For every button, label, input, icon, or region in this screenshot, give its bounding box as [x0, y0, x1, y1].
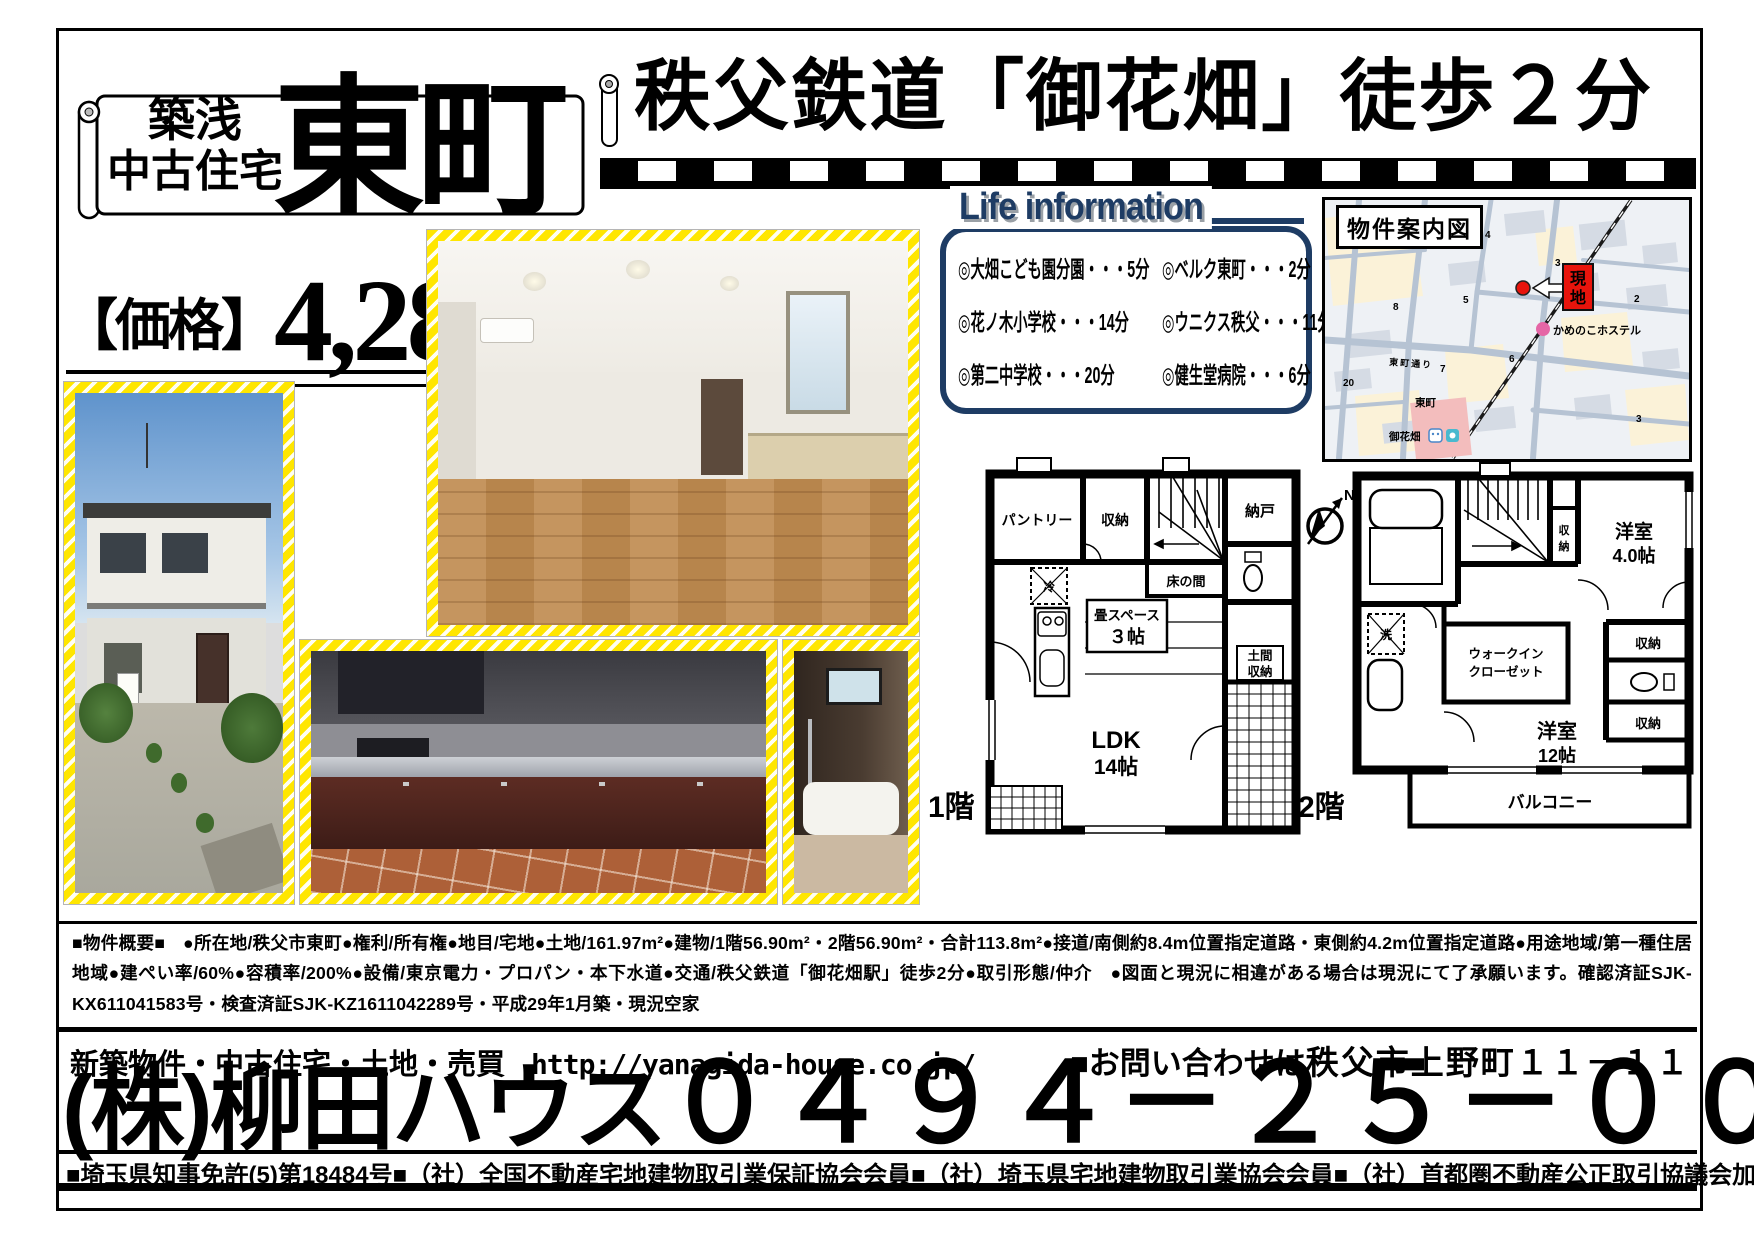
- flyer-page: 築浅 中古住宅 東町 秩父鉄道「御花畑」徒歩２分 【価格】4,280万円: [0, 0, 1754, 1240]
- footer-company-row: (株)柳田ハウス ０４９４－２５－００３８: [62, 1056, 1694, 1153]
- closet-a-label: 収納: [1635, 636, 1661, 651]
- floorplan-1f: 冷 畳スペース ３帖 パントリー 収納 床の間 納戸 土間 収納: [985, 450, 1301, 838]
- photo-bathroom: [794, 651, 908, 893]
- fridge-space: 冷: [1031, 568, 1067, 604]
- map-number: 2: [1634, 294, 1640, 305]
- doma-label-1: 土間: [1247, 648, 1272, 663]
- life-item: ◎ベルク東町・・・2分: [1162, 250, 1311, 284]
- bathtub: [803, 782, 899, 835]
- footer-license-row: ■埼玉県知事免許(5)第18484号 ■（社）全国不動産宅地建物取引業保証協会会…: [66, 1155, 1692, 1190]
- fridge-label: 冷: [1043, 579, 1055, 594]
- property-banner: 築浅 中古住宅 東町: [75, 86, 587, 226]
- stairs-2f: [1464, 476, 1548, 562]
- checker-bar: [600, 158, 1696, 189]
- closet-b-label: 収納: [1635, 716, 1661, 731]
- station-label: 御花畑: [1388, 430, 1421, 443]
- photo-kitchen-frame: [300, 640, 777, 904]
- tatami-label-box: 畳スペース ３帖: [1087, 600, 1167, 652]
- toilet-2f: [1631, 673, 1674, 691]
- tile-floor: [311, 849, 766, 893]
- genkan-tiles: [1225, 682, 1296, 830]
- room4-size: 4.0帖: [1612, 545, 1655, 566]
- tree-bush: [79, 683, 133, 743]
- left-wall: [438, 302, 476, 502]
- license-item: ■（社）全国不動産宅地建物取引業保証協会会員: [393, 1155, 912, 1190]
- cabinet-front: [311, 777, 766, 850]
- divider-footer-top: [59, 1027, 1697, 1032]
- tatami-label: 畳スペース: [1094, 608, 1160, 623]
- washer-label: 洗: [1380, 627, 1392, 642]
- town-label: 東町: [1415, 396, 1437, 409]
- photo-kitchen: [311, 651, 766, 893]
- house-roof: [83, 503, 270, 518]
- pantry-label: パントリー: [1002, 512, 1073, 528]
- wood-floor: [438, 479, 908, 625]
- life-info-rule: [1208, 218, 1304, 224]
- gas-stove: [357, 738, 430, 757]
- property-name: 東町: [273, 74, 561, 226]
- room12-size: 12帖: [1538, 745, 1576, 766]
- ldk-size: 14帖: [1094, 756, 1138, 779]
- life-item: ◎第二中学校・・・20分: [958, 356, 1115, 390]
- doma-storage: 土間 収納: [1237, 646, 1283, 680]
- site-dot: [1516, 281, 1530, 295]
- toilet-1f: [1244, 552, 1262, 591]
- stairs-1f: [1155, 474, 1223, 560]
- tokonoma-label: 床の間: [1166, 574, 1205, 589]
- headline-station-walk: 秩父鉄道「御花畑」徒歩２分: [634, 56, 1675, 138]
- divider-summary-top: [59, 921, 1697, 924]
- map-number: 7: [1440, 364, 1446, 375]
- photo-exterior: [75, 393, 283, 893]
- life-item: ◎花ノ木小学校・・・14分: [958, 303, 1129, 337]
- downlight-1: [523, 272, 547, 291]
- photo-exterior-frame: [64, 382, 294, 904]
- room12-label: 洋室: [1537, 719, 1577, 743]
- door-leaf-2f: [1480, 463, 1510, 476]
- life-item: ◎大畑こども園分園・・・5分: [958, 250, 1150, 284]
- stair-closet-char: 収: [1559, 524, 1571, 537]
- company-name: (株)柳田ハウス: [62, 1064, 665, 1153]
- downlight-3: [720, 276, 739, 291]
- life-info-list: ◎大畑こども園分園・・・5分 ◎ベルク東町・・・2分 ◎花ノ木小学校・・・14分…: [950, 240, 1298, 399]
- hostel-name: かめのこホステル: [1553, 324, 1641, 337]
- doma-label-2: 収納: [1247, 664, 1272, 679]
- photo-interior-frame: [427, 230, 919, 636]
- bush-right: [221, 693, 283, 763]
- wic-label-2: クローゼット: [1468, 664, 1543, 679]
- washer-space: 洗: [1368, 614, 1404, 654]
- map-number: 3: [1555, 258, 1561, 269]
- life-info-title: Life information: [950, 186, 1212, 229]
- floor1-label: 1階: [928, 782, 975, 826]
- banner-tag-1: 築浅: [115, 98, 275, 145]
- license-item: ■（社）首都圏不動産公正取引協議会加盟: [1334, 1155, 1754, 1190]
- property-summary: ■物件概要■ ●所在地/秩父市東町●権利/所有権●地目/宅地●土地/161.97…: [72, 928, 1692, 1019]
- porch-tiles: [990, 786, 1062, 830]
- life-row: ◎第二中学校・・・20分 ◎健生堂病院・・・6分: [950, 346, 1298, 399]
- site-char: 地: [1570, 288, 1586, 307]
- life-item: ◎健生堂病院・・・6分: [1162, 356, 1311, 390]
- cabinet-handles: [311, 782, 766, 786]
- closet-label: 収納: [1101, 512, 1129, 528]
- map-title: 物件案内図: [1336, 205, 1483, 249]
- map-number: 20: [1343, 378, 1355, 389]
- photo-interior: [438, 241, 908, 625]
- bathtub-2f: [1368, 660, 1402, 710]
- photo-bathroom-frame: [783, 640, 919, 904]
- bright-window: [786, 291, 850, 414]
- life-row: ◎大畑こども園分園・・・5分 ◎ベルク東町・・・2分: [950, 240, 1298, 293]
- map-number: 6: [1509, 354, 1515, 365]
- tatami-size: ３帖: [1109, 626, 1145, 647]
- compass-north-icon: N: [1298, 486, 1356, 550]
- map-number: 8: [1393, 302, 1399, 313]
- map-number: 4: [1485, 230, 1491, 241]
- headline-scroll-curl-icon: [594, 64, 632, 154]
- price-label: 【価格】: [62, 281, 274, 370]
- window-1: [100, 533, 146, 573]
- kitchen-counter: [1035, 608, 1069, 696]
- bath-window: [826, 668, 882, 705]
- range-hood: [338, 651, 484, 714]
- license-item: ■（社）埼玉県宅地建物取引業協会会員: [911, 1155, 1334, 1190]
- phone-number: ０４９４－２５－００３８: [665, 1056, 1754, 1153]
- bed: [1370, 490, 1442, 584]
- counter-top: [311, 757, 766, 776]
- aircon-unit: [480, 318, 534, 343]
- room4-label: 洋室: [1615, 520, 1653, 543]
- wic-label-1: ウォークイン: [1468, 647, 1543, 661]
- stair-closet-char: 納: [1559, 539, 1570, 553]
- map-number: 3: [1636, 414, 1642, 425]
- site-char: 現: [1570, 270, 1586, 288]
- life-row: ◎花ノ木小学校・・・14分 ◎ウニクス秩父・・・11分: [950, 293, 1298, 346]
- bath-floor: [794, 835, 908, 893]
- plant-2: [171, 773, 188, 793]
- floorplan-2f: 収 納 洋室 4.0帖 洗 ウォークイン クローゼット 収納 収納 洋室 12帖…: [1352, 462, 1694, 834]
- downlight-2: [626, 260, 650, 279]
- ldk-label: LDK: [1091, 727, 1141, 754]
- nando-label: 納戸: [1245, 502, 1275, 520]
- antenna: [146, 423, 148, 468]
- life-item: ◎ウニクス秩父・・・11分: [1162, 303, 1332, 337]
- floor2-label: 2階: [1298, 782, 1345, 826]
- window-2: [162, 533, 208, 573]
- dark-doorway: [701, 379, 743, 475]
- map-number: 5: [1463, 295, 1469, 306]
- balcony-label: バルコニー: [1508, 793, 1593, 812]
- license-item: ■埼玉県知事免許(5)第18484号: [66, 1155, 393, 1190]
